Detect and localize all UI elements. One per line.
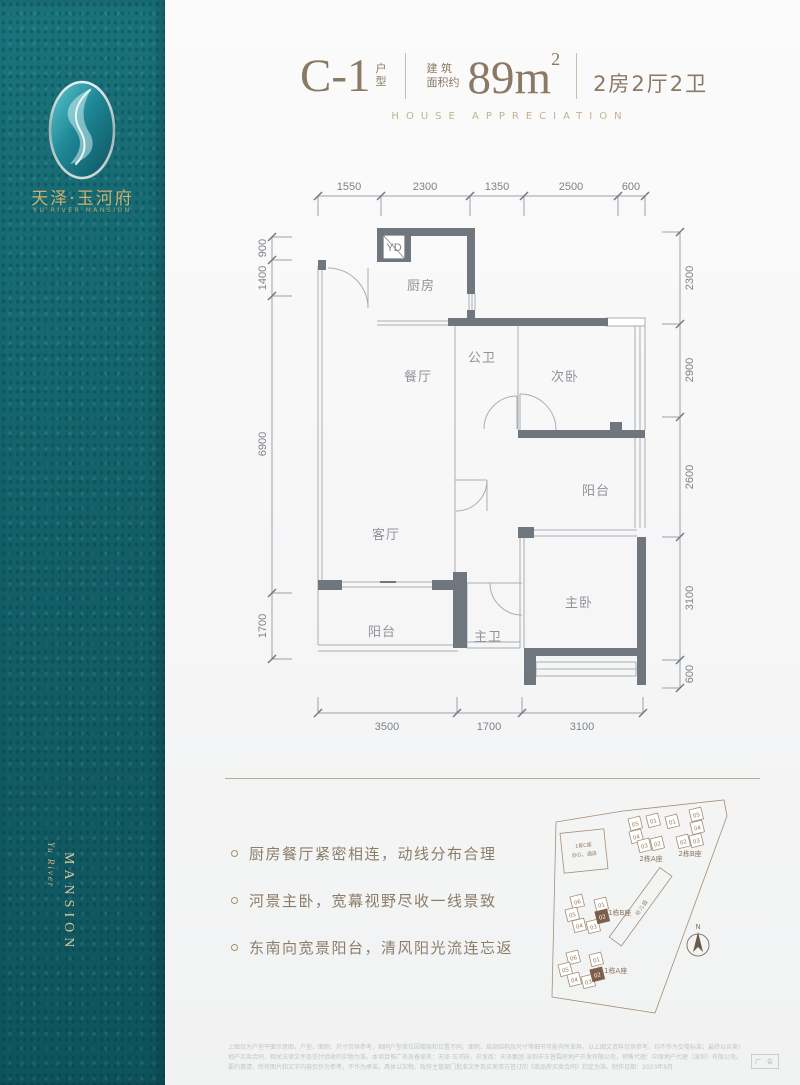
room-dining: 餐厅 <box>404 369 432 385</box>
svg-text:600: 600 <box>622 181 640 193</box>
feature-text-2: 河景主卧，宽幕视野尽收一线景致 <box>249 890 497 911</box>
svg-text:2300: 2300 <box>684 266 696 290</box>
svg-text:2600: 2600 <box>684 465 696 489</box>
circle-bullet-icon <box>231 850 238 857</box>
svg-text:2300: 2300 <box>413 181 437 193</box>
svg-text:3100: 3100 <box>570 721 594 733</box>
room-layout-text: 2房2厅2卫 <box>593 68 708 102</box>
svg-text:1700: 1700 <box>477 721 501 733</box>
room-kitchen: 厨房 <box>407 278 435 294</box>
dims-bottom-labels: 3500 1700 3100 <box>375 721 594 733</box>
room-labels: 厨房 公卫 次卧 餐厅 阳台 客厅 主卧 主卫 阳台 <box>368 278 610 645</box>
disclaimer: 上图仅为户型平面示意图，户型、面积、尺寸仅供参考，相同户型单位因楼层和位置不同，… <box>228 1043 740 1073</box>
svg-text:1400: 1400 <box>257 266 269 290</box>
feature-item: 河景主卧，宽幕视野尽收一线景致 <box>231 890 513 911</box>
area-exponent: 2 <box>551 49 560 69</box>
svg-text:幼儿园: 幼儿园 <box>634 898 650 917</box>
unit-type-text: 户型 <box>376 63 389 88</box>
block-2b: 01 05 04 02 03 2栋B座 <box>665 807 705 858</box>
circle-bullet-icon <box>231 897 238 904</box>
svg-text:600: 600 <box>684 665 696 683</box>
block-1a-label: 1栋A座 <box>604 966 627 975</box>
svg-text:6900: 6900 <box>257 432 269 456</box>
svg-text:900: 900 <box>257 239 269 257</box>
room-second-bedroom: 次卧 <box>551 369 579 385</box>
room-guest-bath: 公卫 <box>468 351 496 366</box>
dims-right <box>662 228 684 692</box>
block-2a: 05 04 01 03 02 2栋A座 <box>628 813 665 863</box>
unit-type-label: 户型 <box>376 63 389 88</box>
feature-list: 厨房餐厅紧密相连，动线分布合理 河景主卧，宽幕视野尽收一线景致 东南向宽景阳台，… <box>231 843 513 984</box>
area-label-line2: 面积约 <box>427 77 460 89</box>
header-subtitle: HOUSE APPRECIATION <box>300 111 720 122</box>
feature-text-1: 厨房餐厅紧密相连，动线分布合理 <box>249 843 497 864</box>
highlighted-unit: 02 <box>590 967 605 982</box>
area-value: 89m2 <box>468 50 561 102</box>
compass-icon: N <box>687 923 709 956</box>
kindergarten-strip: 幼儿园 <box>609 868 672 946</box>
feature-item: 厨房餐厅紧密相连，动线分布合理 <box>231 843 513 864</box>
svg-text:1700: 1700 <box>257 614 269 638</box>
dims-right-labels: 2300 2900 2600 3100 600 <box>684 266 696 683</box>
block-1a: 06 01 05 04 03 02 1栋A座 <box>558 950 627 989</box>
block-2a-label: 2栋A座 <box>639 854 662 863</box>
block-1b: 06 01 05 04 03 02 1栋B座 <box>565 894 631 934</box>
poster-page: 天泽·玉河府 YU RIVER MANSION Yu River MANSION… <box>0 0 800 1085</box>
brand-logo <box>40 78 124 186</box>
thin-walls <box>318 266 645 676</box>
dims-top-labels: 1550 2300 1350 2500 600 <box>337 181 640 193</box>
area-number: 89m <box>468 52 552 104</box>
feature-item: 东南向宽景阳台，清风阳光流连忘返 <box>231 937 513 958</box>
room-balcony-east: 阳台 <box>582 484 610 499</box>
vertical-word-text: MANSION <box>60 852 76 952</box>
block-2b-label: 2栋B座 <box>678 849 701 858</box>
feature-text-3: 东南向宽景阳台，清风阳光流连忘返 <box>249 937 513 958</box>
svg-text:1550: 1550 <box>337 181 361 193</box>
room-balcony-south: 阳台 <box>368 625 396 640</box>
room-master-bedroom: 主卧 <box>565 596 593 611</box>
site-plan-map: 1栋C座 办公、酒店 幼儿园 05 04 01 03 02 2栋A座 01 05… <box>540 793 785 1028</box>
header-divider-1 <box>405 53 406 99</box>
jade-logo-icon <box>40 78 124 182</box>
svg-text:办公、酒店: 办公、酒店 <box>572 850 598 860</box>
area-label-line1: 建 筑 <box>427 63 460 75</box>
svg-text:3100: 3100 <box>684 586 696 610</box>
disclaimer-line-1: 上图仅为户型平面示意图，户型、面积、尺寸仅供参考，相同户型单位因楼层和位置不同，… <box>228 1043 740 1053</box>
floor-plan: 1550 2300 1350 2500 600 900 1400 6900 17… <box>240 172 710 752</box>
brand-name-cn: 天泽·玉河府 <box>0 184 165 209</box>
sidebar-vertical-art: Yu River MANSION <box>60 852 76 992</box>
room-master-bath: 主卫 <box>474 630 502 645</box>
compass-north-label: N <box>695 923 700 931</box>
unit-code: C-1 <box>300 53 371 100</box>
header-divider-2 <box>576 53 577 99</box>
circle-bullet-icon <box>231 944 238 951</box>
flue-label: YD <box>386 242 401 254</box>
svg-text:2900: 2900 <box>684 358 696 382</box>
area-label: 建 筑 面积约 <box>427 63 460 89</box>
brand-sidebar: 天泽·玉河府 YU RIVER MANSION Yu River MANSION <box>0 0 165 1085</box>
svg-text:1栋C座: 1栋C座 <box>575 841 592 850</box>
room-living: 客厅 <box>372 527 400 543</box>
dims-left-labels: 900 1400 6900 1700 <box>257 239 269 638</box>
section-divider <box>225 778 760 779</box>
dims-top <box>314 192 649 216</box>
dims-left <box>268 233 292 663</box>
solid-walls <box>318 228 646 685</box>
brand-name-en: YU RIVER MANSION <box>0 207 165 214</box>
svg-text:3500: 3500 <box>375 721 399 733</box>
vertical-script-text: Yu River <box>46 842 56 888</box>
svg-text:1350: 1350 <box>485 181 509 193</box>
unit-header: C-1 户型 建 筑 面积约 89m2 2房2厅2卫 <box>300 50 720 102</box>
disclaimer-line-2: 地产买卖合同、相关法律文件及交付验收的实物为准。本项目推广名及备案名：天泽·玉河… <box>228 1053 740 1063</box>
svg-text:2500: 2500 <box>559 181 583 193</box>
disclaimer-line-3: 要约邀请，所有图片和文字内容仅作为参考，不作为承诺，具体以实物、政府主管部门批准… <box>228 1063 740 1073</box>
block-1b-label: 1栋B座 <box>608 908 631 917</box>
dims-bottom <box>314 697 647 717</box>
flue-duct: YD <box>383 235 405 259</box>
ad-label-badge: 广 告 <box>751 1054 779 1069</box>
building-c: 1栋C座 办公、酒店 <box>560 829 608 873</box>
